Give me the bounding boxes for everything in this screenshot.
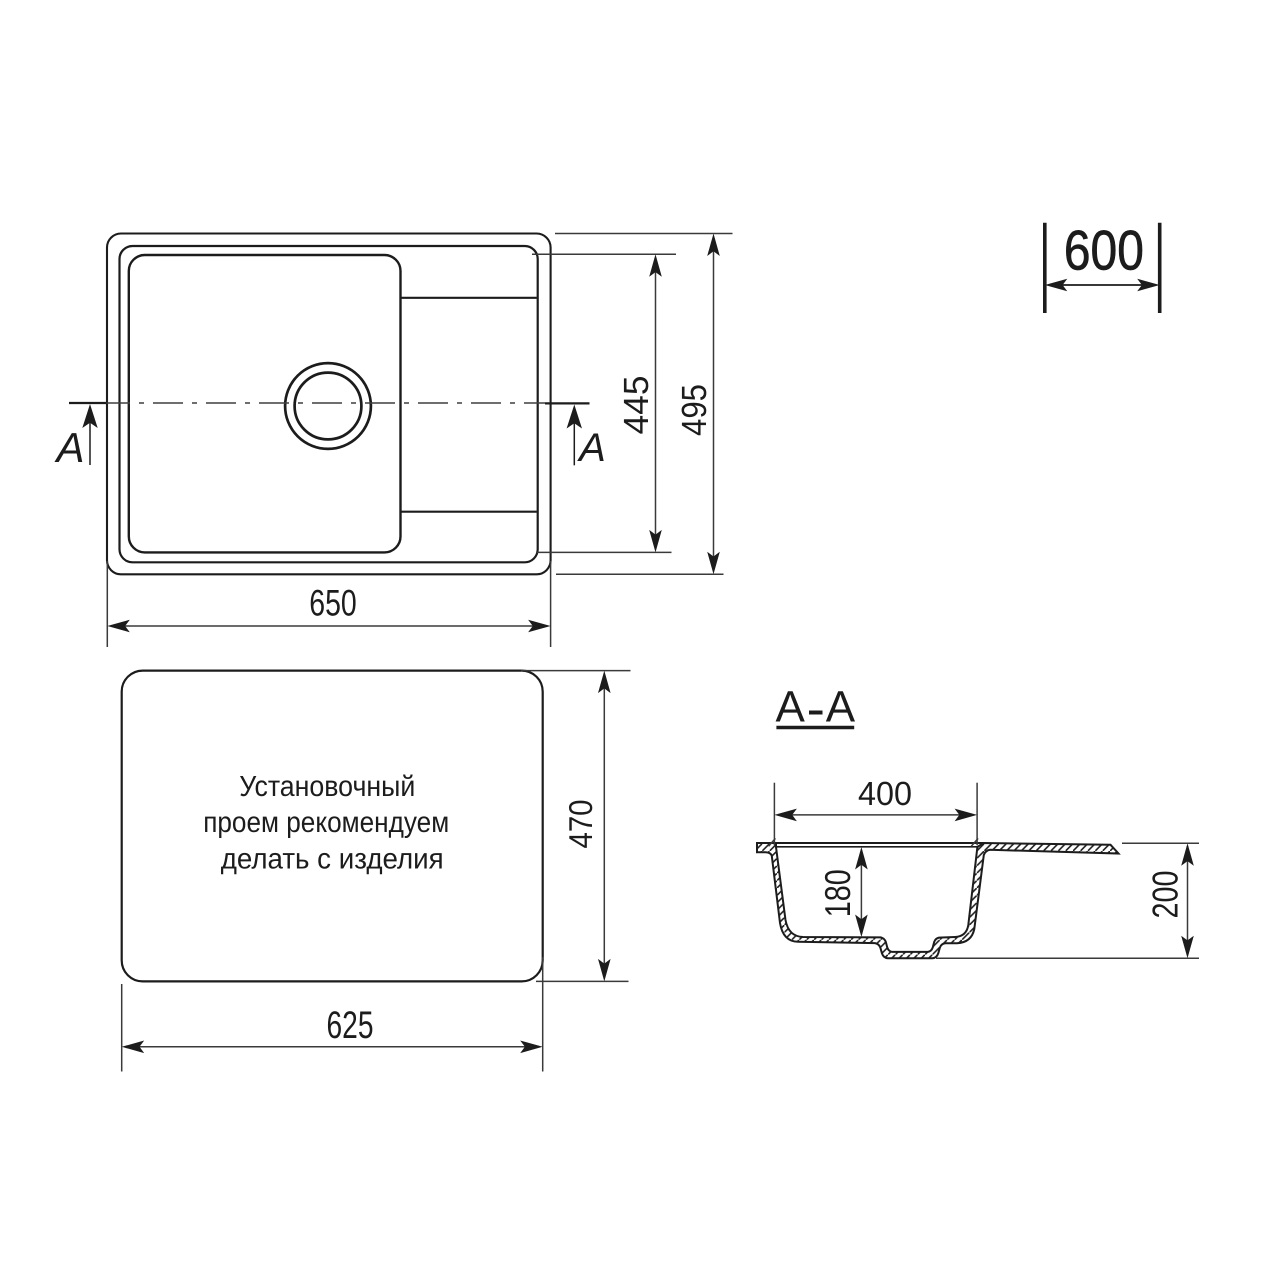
svg-text:445: 445 [617, 376, 656, 435]
svg-text:200: 200 [1145, 871, 1186, 919]
svg-text:A: A [826, 683, 856, 732]
svg-text:495: 495 [675, 384, 714, 436]
svg-text:делать с изделия: делать с изделия [221, 843, 444, 875]
svg-text:400: 400 [858, 776, 912, 813]
svg-text:A: A [53, 424, 84, 471]
svg-text:A: A [577, 426, 606, 470]
svg-text:650: 650 [309, 582, 357, 623]
svg-text:470: 470 [562, 800, 599, 849]
svg-text:проем рекомендуем: проем рекомендуем [203, 807, 449, 839]
svg-text:A: A [776, 683, 806, 732]
svg-text:600: 600 [1064, 219, 1144, 282]
svg-text:625: 625 [327, 1004, 374, 1047]
svg-text:Установочный: Установочный [239, 771, 415, 803]
svg-text:180: 180 [817, 869, 858, 917]
